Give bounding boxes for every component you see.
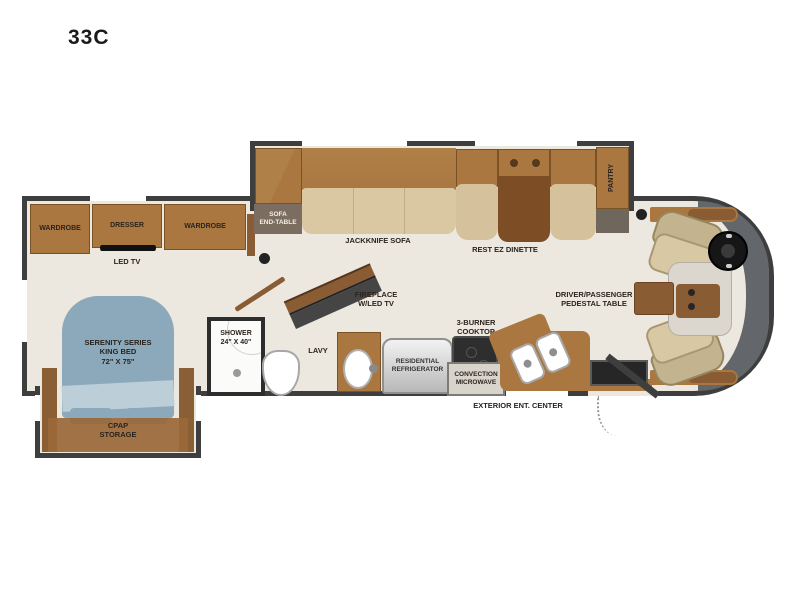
window xyxy=(475,141,577,146)
pedestal-table xyxy=(634,282,674,315)
dinette-label: REST EZ DINETTE xyxy=(438,245,572,254)
dinette-table-top xyxy=(498,149,550,179)
dresser: DRESSER xyxy=(92,204,162,248)
page-title: 33C xyxy=(68,26,110,50)
floorplan-33c: 33C WARDROBE DRESSER LED TV WARDROBE SER… xyxy=(0,0,800,600)
shower: SHOWER 24" X 40" xyxy=(207,317,265,396)
microwave: CONVECTION MICROWAVE xyxy=(447,362,505,396)
pantry-base-cabinet xyxy=(596,209,629,233)
dinette-bench-back xyxy=(550,149,596,187)
wardrobe-left: WARDROBE xyxy=(30,204,90,254)
pantry-label: PANTRY xyxy=(608,164,617,192)
speaker-dot xyxy=(636,209,647,220)
jackknife-sofa-label: JACKKNIFE SOFA xyxy=(300,236,456,245)
window xyxy=(35,395,40,421)
pantry: PANTRY xyxy=(596,147,629,209)
bed-label: SERENITY SERIES KING BED 72" X 75" xyxy=(58,338,178,366)
fireplace-label: FIREPLACE W/LED TV xyxy=(344,290,408,309)
dresser-label: DRESSER xyxy=(110,222,144,231)
sofa-seat xyxy=(302,188,456,234)
sofa-arm xyxy=(255,148,302,204)
sofa-end-table-label: SOFA END-TABLE xyxy=(259,211,296,227)
wardrobe-right-label: WARDROBE xyxy=(184,223,226,232)
dinette-bench-back xyxy=(456,149,498,187)
sofa-end-table: SOFA END-TABLE xyxy=(254,204,302,234)
entry-door-swing-arc xyxy=(597,396,617,436)
sofa-back xyxy=(302,148,456,190)
window xyxy=(196,395,201,421)
tv-icon xyxy=(100,245,156,251)
window xyxy=(302,141,407,146)
steering-wheel-icon xyxy=(708,231,748,271)
dinette-bench-seat xyxy=(550,184,596,240)
wardrobe-right: WARDROBE xyxy=(164,204,246,250)
lavy-label: LAVY xyxy=(300,346,336,355)
exterior-ent-center-label: EXTERIOR ENT. CENTER xyxy=(448,401,588,410)
wardrobe-left-label: WARDROBE xyxy=(39,225,81,234)
microwave-label: CONVECTION MICROWAVE xyxy=(454,371,497,387)
led-tv-label: LED TV xyxy=(92,257,162,266)
shower-drain xyxy=(233,369,241,377)
shower-label: SHOWER 24" X 40" xyxy=(211,330,261,348)
dinette-bench-seat xyxy=(456,184,498,240)
pedestal-table-label: DRIVER/PASSENGER PEDESTAL TABLE xyxy=(548,290,640,309)
window xyxy=(506,391,568,396)
refrigerator: RESIDENTIAL REFRIGERATOR xyxy=(382,338,453,394)
refrigerator-label: RESIDENTIAL REFRIGERATOR xyxy=(392,358,443,374)
speaker-dot xyxy=(259,253,270,264)
dinette-table xyxy=(498,176,550,242)
window xyxy=(90,196,146,201)
console-table xyxy=(676,284,720,318)
cpap-label: CPAP STORAGE xyxy=(83,421,153,440)
lavy-faucet xyxy=(369,364,378,373)
window xyxy=(22,280,27,342)
